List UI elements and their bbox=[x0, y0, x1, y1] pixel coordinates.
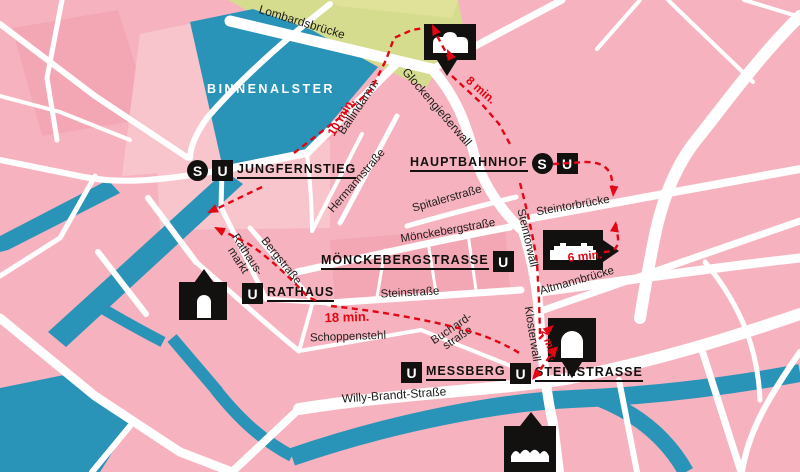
station-steinstrasse[interactable]: U STEINSTRASSE bbox=[510, 363, 643, 384]
station-jungfernstieg[interactable]: S U JUNGFERNSTIEG bbox=[187, 160, 356, 181]
ubahn-badge-icon[interactable]: U bbox=[212, 160, 233, 181]
station-label-hauptbahnhof: HAUPTBAHNHOF bbox=[410, 155, 528, 172]
station-rathaus[interactable]: U RATHAUS bbox=[242, 283, 334, 304]
peaked-roof-building-icon bbox=[503, 410, 557, 472]
station-moenckebergstrasse[interactable]: MÖNCKEBERGSTRASSE U bbox=[321, 251, 514, 272]
station-label-jungfernstieg: JUNGFERNSTIEG bbox=[237, 162, 356, 179]
station-label-messberg: MESSBERG bbox=[426, 364, 506, 381]
sbahn-badge-icon[interactable]: S bbox=[532, 153, 553, 174]
lake-label-binnenalster: BINNENALSTER bbox=[207, 82, 335, 96]
venue-marker-south-halls[interactable] bbox=[503, 410, 557, 472]
sbahn-badge-icon[interactable]: S bbox=[187, 160, 208, 181]
ubahn-badge-icon[interactable]: U bbox=[493, 251, 514, 272]
city-map[interactable]: S U JUNGFERNSTIEG HAUPTBAHNHOF S U MÖNCK… bbox=[0, 0, 800, 472]
station-label-steinstrasse: STEINSTRASSE bbox=[535, 365, 643, 382]
station-hauptbahnhof[interactable]: HAUPTBAHNHOF S U bbox=[410, 153, 578, 174]
walk-time-18min: 18 min. bbox=[324, 309, 369, 326]
station-messberg[interactable]: U MESSBERG bbox=[401, 362, 506, 383]
ubahn-badge-icon[interactable]: U bbox=[510, 363, 531, 384]
ubahn-badge-icon[interactable]: U bbox=[242, 283, 263, 304]
station-label-rathaus: RATHAUS bbox=[267, 285, 334, 302]
museum-building-icon bbox=[423, 22, 479, 78]
town-hall-icon bbox=[178, 268, 230, 322]
station-label-moenckebergstrasse: MÖNCKEBERGSTRASSE bbox=[321, 253, 489, 270]
ubahn-badge-icon[interactable]: U bbox=[401, 362, 422, 383]
venue-marker-rathaus[interactable] bbox=[178, 268, 230, 327]
ubahn-badge-icon[interactable]: U bbox=[557, 153, 578, 174]
